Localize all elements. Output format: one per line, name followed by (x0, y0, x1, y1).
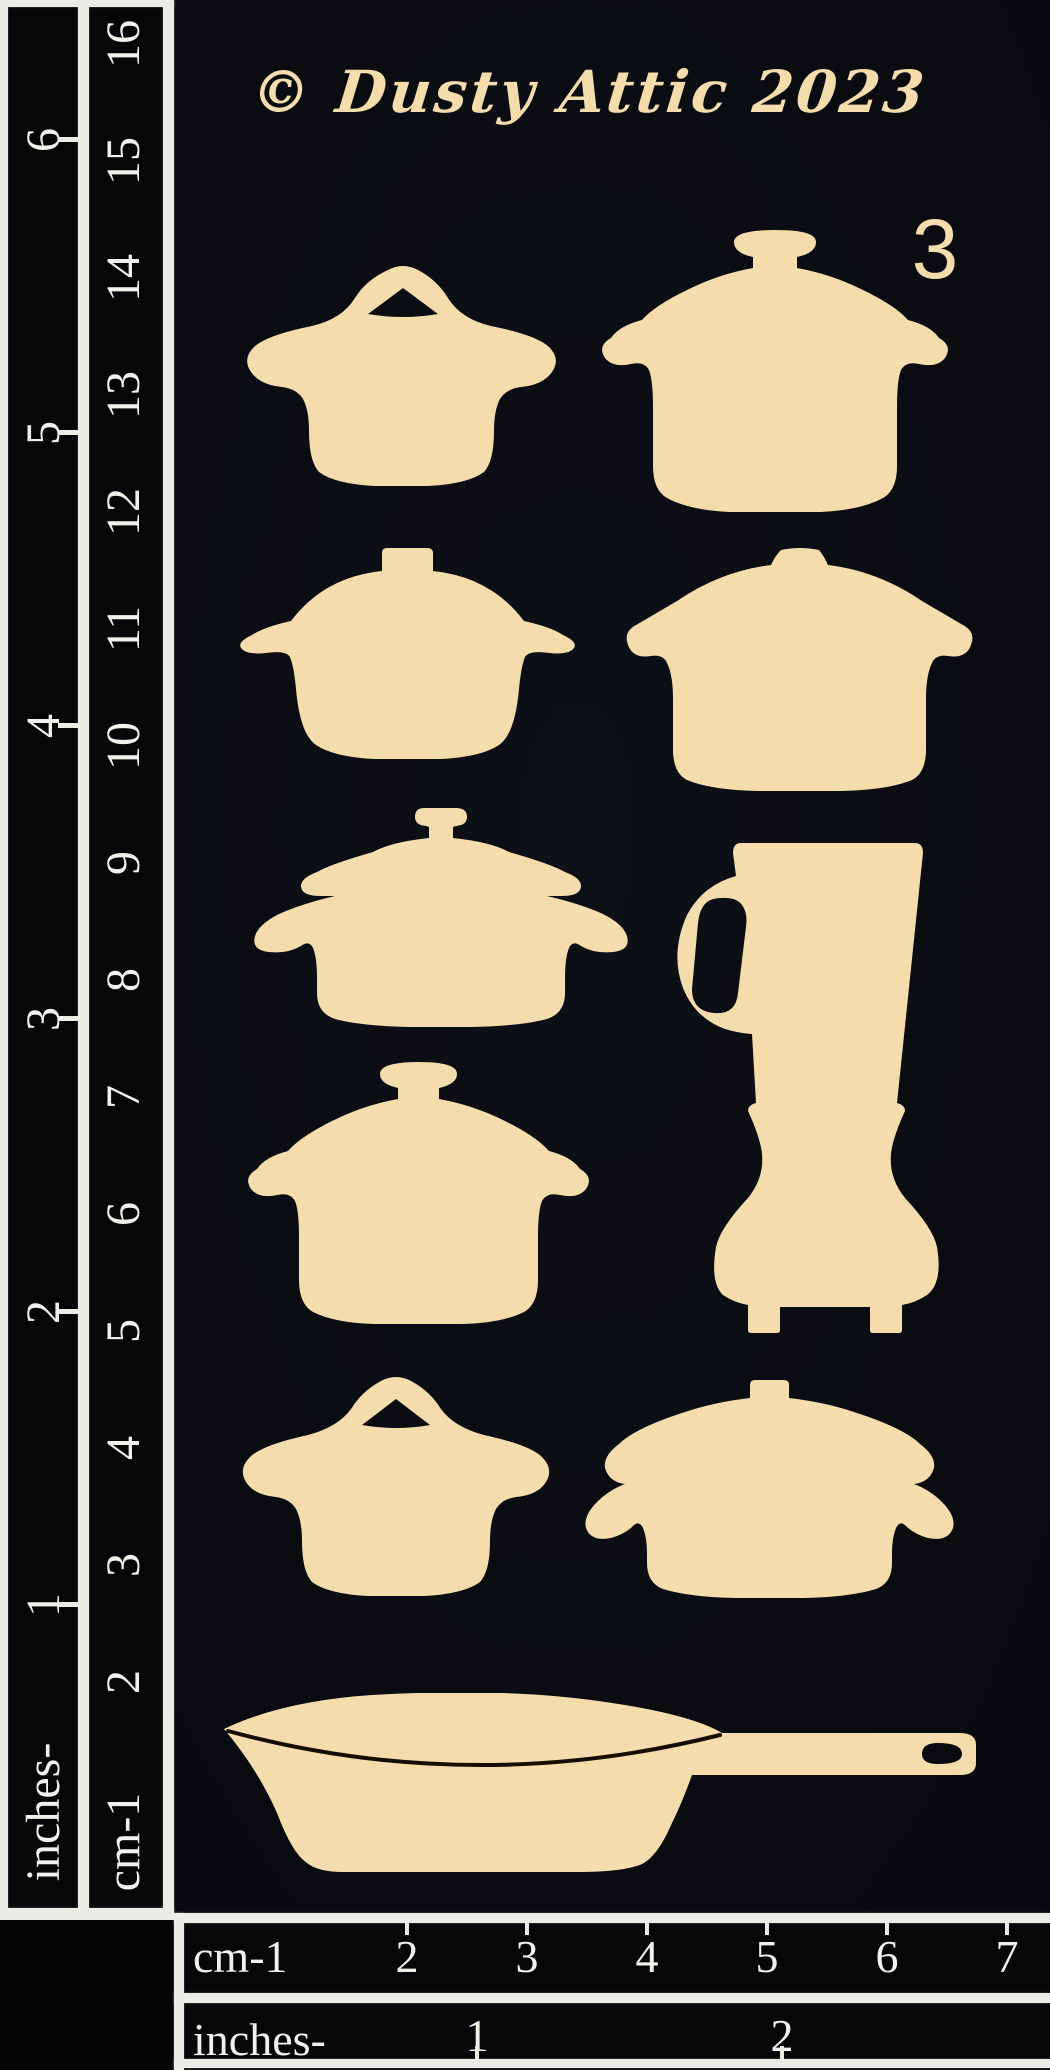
bottom-ruler-cm-number: 5 (756, 1934, 779, 1980)
left-ruler-cm-number: 3 (100, 1553, 148, 1577)
bottom-ruler-cm-tick (405, 1923, 409, 1935)
left-ruler-cm-number: 8 (100, 968, 148, 992)
left-ruler-cm-number: 2 (100, 1670, 148, 1694)
bottom-left-corner (0, 1920, 174, 2070)
left-ruler-inch-tick (58, 137, 80, 142)
product-photo: 1234562345678910111213141516 inches- cm-… (0, 0, 1050, 2070)
left-ruler-cm-number: 10 (100, 722, 148, 770)
piece-pot-arch-handle-small (240, 1375, 552, 1598)
bottom-ruler-cm-tick (645, 1923, 649, 1935)
piece-blender (675, 843, 978, 1333)
left-ruler-separator-line (78, 0, 89, 1913)
left-ruler-right-border (163, 0, 174, 1920)
piece-oval-casserole (584, 1378, 956, 1598)
left-ruler-cm-number: 16 (100, 20, 148, 68)
bottom-ruler-cm-tick (525, 1923, 529, 1935)
left-ruler-left-border (0, 0, 8, 1913)
bottom-ruler-cm-label: cm-1 (193, 1934, 288, 1980)
left-ruler-inch-tick (58, 430, 80, 435)
left-ruler-cm-number: 15 (100, 137, 148, 185)
bottom-ruler-cm-tick (885, 1923, 889, 1935)
left-ruler-cm-number: 4 (100, 1436, 148, 1460)
left-ruler-inch-tick (58, 1016, 80, 1021)
left-ruler-cm-number: 13 (100, 371, 148, 419)
left-ruler-cm-number: 5 (100, 1319, 148, 1343)
bottom-ruler-top-border (174, 1913, 1050, 1923)
left-ruler-inch-tick (58, 723, 80, 728)
bottom-ruler-cm-number: 6 (876, 1934, 899, 1980)
piece-casserole-wing-handles (240, 548, 578, 759)
bottom-ruler-cm-number: 7 (996, 1934, 1019, 1980)
left-ruler-cm-label: cm-1 (100, 1793, 148, 1892)
bottom-ruler-cm-tick (1005, 1923, 1009, 1935)
left-ruler-cm-number: 14 (100, 254, 148, 302)
left-ruler-cm-number: 12 (100, 488, 148, 536)
piece-pot-knob-ears-large (600, 226, 952, 515)
left-ruler-cm-number: 11 (100, 606, 148, 652)
piece-dutch-oven-knob (247, 1058, 594, 1325)
bottom-ruler-inch-tick (475, 2046, 479, 2059)
bottom-ruler-inch-tick (780, 2046, 784, 2059)
bottom-ruler-cm-tick (765, 1923, 769, 1935)
bottom-ruler-cm-number: 3 (516, 1934, 539, 1980)
piece-skillet (222, 1693, 980, 1879)
copyright-text: © Dusty Attic 2023 (248, 58, 930, 126)
bottom-ruler-left-border (174, 1913, 184, 2070)
left-ruler-bottom-border (0, 1908, 174, 1920)
left-ruler-inch-tick (58, 1309, 80, 1314)
left-ruler-cm-number: 7 (100, 1085, 148, 1109)
bottom-ruler-mid-border (174, 1993, 1050, 2003)
bottom-ruler-inches-label: inches- (193, 2017, 326, 2063)
left-ruler-inches-label: inches- (20, 1743, 68, 1882)
piece-casserole-flanged-lid (250, 808, 632, 1027)
left-ruler-inch-tick (58, 1602, 80, 1607)
bottom-ruler-cm-number: 4 (636, 1934, 659, 1980)
piece-pot-bump-knob (625, 548, 975, 791)
left-ruler-cm-number: 9 (100, 851, 148, 875)
header: © Dusty Attic 2023 (252, 44, 852, 140)
left-ruler-cm-number: 6 (100, 1202, 148, 1226)
bottom-ruler-cm-number: 2 (396, 1934, 419, 1980)
piece-pot-arch-handle (246, 264, 558, 490)
